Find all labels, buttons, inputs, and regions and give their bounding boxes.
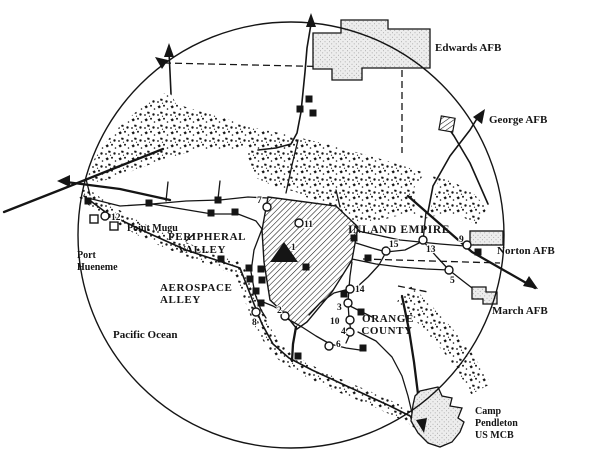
facility-square-marker (246, 265, 253, 272)
facility-square-marker (218, 256, 225, 263)
site-number-label: 13 (426, 245, 436, 255)
label-march-afb: March AFB (492, 305, 548, 317)
site-number-label: 3 (337, 303, 342, 313)
naval-open-square-marker (90, 215, 98, 223)
label-camp-pendleton-line1: Camp (475, 406, 502, 417)
label-peripheral-valley-line2: VALLEY (178, 244, 226, 256)
site-number-label: 5 (450, 276, 455, 286)
label-port-hueneme-line2: Hueneme (77, 262, 118, 273)
site-number-label: 10 (330, 317, 340, 327)
site-number-label: 6 (336, 340, 341, 350)
site-circle-marker (346, 316, 354, 324)
site-circle-marker (346, 328, 354, 336)
map-canvas: 123456789101112131415 Edwards AFB George… (0, 0, 612, 470)
site-number-label: 14 (355, 285, 365, 295)
label-camp-pendleton-line3: US MCB (475, 430, 514, 441)
site-circle-marker (295, 219, 303, 227)
label-port-hueneme-line1: Port (77, 250, 97, 261)
label-orange-county-line1: ORANGE (362, 313, 414, 325)
facility-square-marker (475, 249, 482, 256)
site-number-label: 9 (459, 235, 464, 245)
facility-square-marker (310, 110, 317, 117)
facility-square-marker (360, 345, 367, 352)
site-number-label: 4 (341, 327, 346, 337)
site-number-label: 2 (277, 306, 282, 316)
site-circle-marker (101, 212, 109, 220)
facility-square-marker (232, 209, 239, 216)
george-afb-interchange (439, 116, 455, 132)
label-aerospace-alley-line2: ALLEY (160, 294, 201, 306)
label-inland-empire: INLAND EMPIRE (348, 224, 450, 236)
label-aerospace-alley-line1: AEROSPACE (160, 282, 232, 294)
site-14: 14 (346, 285, 365, 295)
site-circle-marker (346, 285, 354, 293)
site-circle-marker (252, 308, 260, 316)
site-number-label: 11 (304, 220, 313, 230)
facility-square-marker (253, 288, 260, 295)
label-orange-county-line2: COUNTY (361, 325, 412, 337)
facility-square-marker (85, 198, 92, 205)
label-pacific-ocean: Pacific Ocean (113, 329, 177, 341)
site-circle-marker (419, 236, 427, 244)
facility-square-marker (208, 210, 215, 217)
facility-square-marker (259, 277, 266, 284)
label-george-afb: George AFB (489, 114, 548, 126)
site-circle-marker (463, 241, 471, 249)
aerospace-region-map: 123456789101112131415 Edwards AFB George… (0, 0, 612, 470)
site-circle-marker (281, 312, 289, 320)
site-number-label: 8 (252, 318, 257, 328)
facility-square-marker (215, 197, 222, 204)
facility-square-marker (365, 255, 372, 262)
facility-square-marker (258, 300, 265, 307)
site-number-label: 15 (389, 240, 399, 250)
site-number-label: 7 (257, 196, 262, 206)
facility-square-marker (303, 264, 310, 271)
norton-afb-area (470, 231, 503, 245)
site-circle-marker (325, 342, 333, 350)
facility-square-marker (306, 96, 313, 103)
naval-open-square-marker (110, 222, 118, 230)
label-camp-pendleton-line2: Pendleton (475, 418, 518, 429)
facility-square-marker (247, 276, 254, 283)
site-4: 4 (341, 327, 354, 337)
facility-square-marker (258, 266, 265, 273)
site-number-label: 1 (291, 243, 296, 253)
label-norton-afb: Norton AFB (497, 245, 555, 257)
facility-square-marker (295, 353, 302, 360)
facility-square-marker (146, 200, 153, 207)
label-peripheral-valley-line1: PERIPHERAL (168, 231, 246, 243)
label-edwards-afb: Edwards AFB (435, 42, 502, 54)
site-circle-marker (445, 266, 453, 274)
site-circle-marker (344, 299, 352, 307)
site-number-label: 12 (111, 213, 121, 223)
facility-square-marker (297, 106, 304, 113)
site-circle-marker (263, 203, 271, 211)
